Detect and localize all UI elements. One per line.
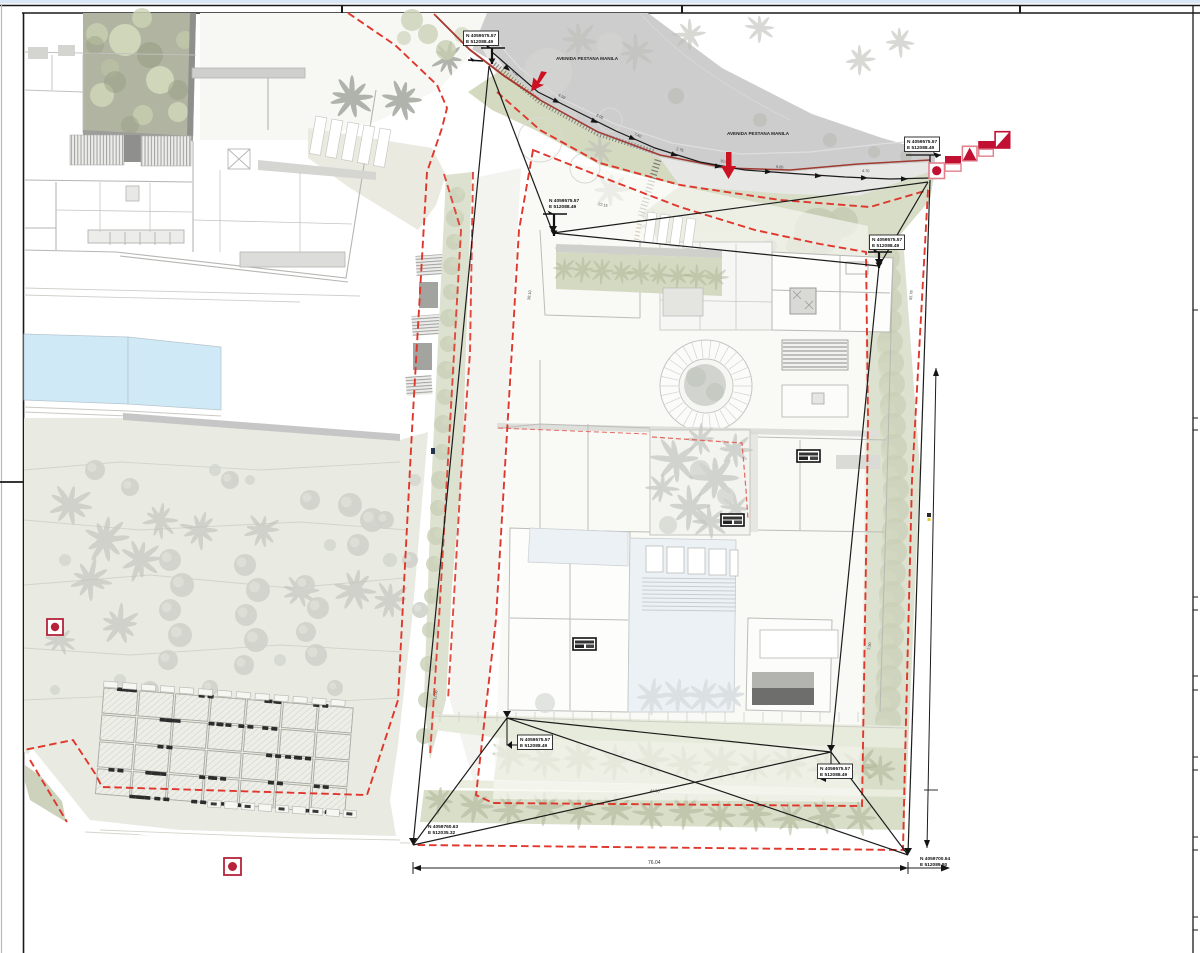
svg-text:N 4059575.57: N 4059575.57 [549,198,579,204]
svg-text:N 4059575.57: N 4059575.57 [520,737,550,743]
svg-text:AVENIDA PESTANA MANILA: AVENIDA PESTANA MANILA [727,131,790,136]
svg-text:E 512088.49: E 512088.49 [520,743,548,749]
svg-text:E 512088.49: E 512088.49 [872,243,900,249]
svg-text:N 4059700.54: N 4059700.54 [920,856,950,862]
svg-text:E 512035.32: E 512035.32 [428,830,456,836]
svg-text:N 4059760.63: N 4059760.63 [428,824,458,830]
svg-text:4.70: 4.70 [862,169,870,173]
svg-text:E 512088.49: E 512088.49 [907,145,935,151]
svg-text:76.04: 76.04 [648,860,661,866]
svg-text:N 4059575.57: N 4059575.57 [820,766,850,772]
svg-text:55.78: 55.78 [909,290,914,300]
svg-text:E 512089.80: E 512089.80 [920,862,948,868]
svg-text:N 4059575.57: N 4059575.57 [466,33,496,39]
svg-text:E 512088.49: E 512088.49 [549,204,577,210]
svg-text:E 512088.49: E 512088.49 [466,39,494,45]
svg-text:44.56: 44.56 [650,789,660,793]
svg-text:N 4059575.57: N 4059575.57 [907,139,937,145]
svg-text:AVENIDA PESTANA MANILA: AVENIDA PESTANA MANILA [556,56,619,61]
svg-text:E 512088.49: E 512088.49 [820,772,848,778]
svg-text:N 4059575.57: N 4059575.57 [872,237,902,243]
svg-text:9.05: 9.05 [776,165,784,170]
